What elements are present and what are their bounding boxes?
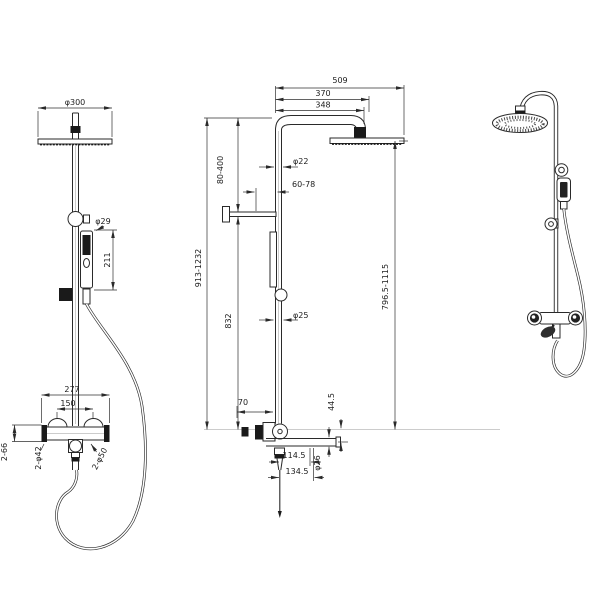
front-view: φ300 φ29 211 xyxy=(0,98,145,549)
dim-overall-height: 913-1232 xyxy=(194,249,203,288)
dim-arm-projection-inner: 348 xyxy=(315,101,330,110)
dim-flange-diameter: 2-φ42 xyxy=(34,446,43,469)
dim-spout-drop: 44.5 xyxy=(327,393,336,411)
dim-valve-depth: 70 xyxy=(238,398,248,407)
dim-riser-diameter: φ22 xyxy=(293,157,308,166)
dim-riser-fixed-height: 832 xyxy=(224,313,233,328)
dim-hand-shower-diameter: φ29 xyxy=(95,217,110,226)
dim-hand-shower-length: 211 xyxy=(103,252,112,267)
dim-lower-riser-diameter: φ25 xyxy=(293,311,308,320)
drawing-page: φ300 φ29 211 xyxy=(0,0,600,600)
dim-valve-center-spacing: 150 xyxy=(60,399,75,408)
dim-head-diameter: φ300 xyxy=(65,98,86,107)
dim-inlet-detail: 2-66 xyxy=(0,443,9,461)
dim-valve-overall-width: 277 xyxy=(64,385,79,394)
dim-wall-clearance: 60-78 xyxy=(292,180,315,189)
technical-drawing-canvas: φ300 φ29 211 xyxy=(0,0,600,600)
dim-escutcheon-diameter: 2-φ50 xyxy=(90,446,109,471)
side-view: 509 370 348 913-1232 80-400 832 φ22 60-7… xyxy=(194,76,500,518)
dim-spout-diameter: φ26 xyxy=(313,455,322,470)
perspective-view xyxy=(493,93,586,376)
dim-arm-projection-outer: 370 xyxy=(315,89,330,98)
dim-spout-reach-inner: 114.5 xyxy=(283,451,306,460)
dim-overall-projection: 509 xyxy=(332,76,347,85)
dim-riser-adjustment: 80-400 xyxy=(216,156,225,184)
dim-head-to-spout-height: 796.5-1115 xyxy=(381,264,390,310)
dim-spout-reach-outer: 134.5 xyxy=(286,467,309,476)
